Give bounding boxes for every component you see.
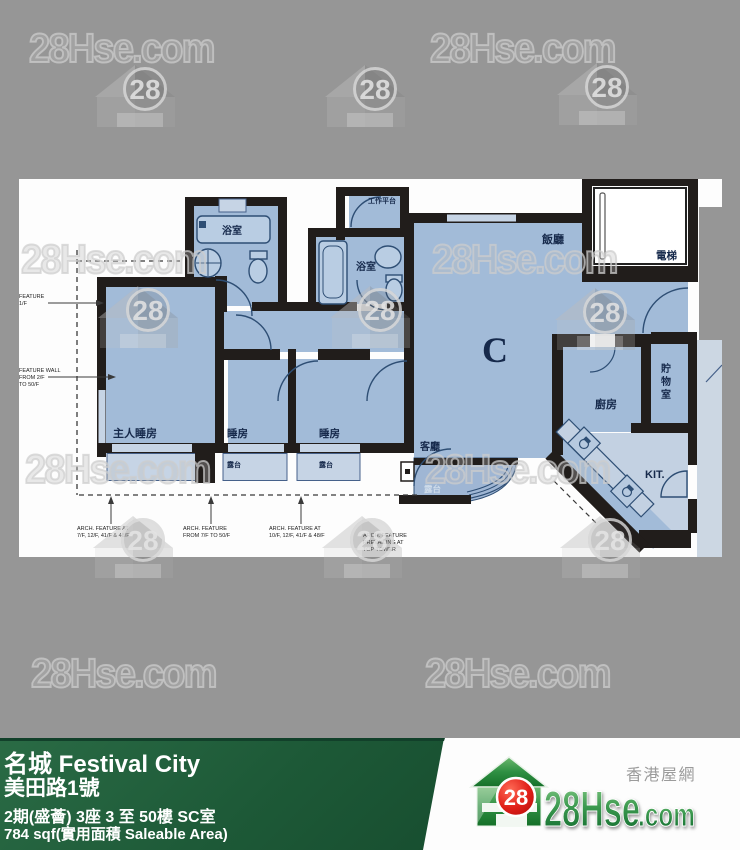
svg-text:.com: .com xyxy=(638,796,695,833)
svg-text:28Hse: 28Hse xyxy=(544,781,640,837)
svg-text:28: 28 xyxy=(504,785,528,810)
